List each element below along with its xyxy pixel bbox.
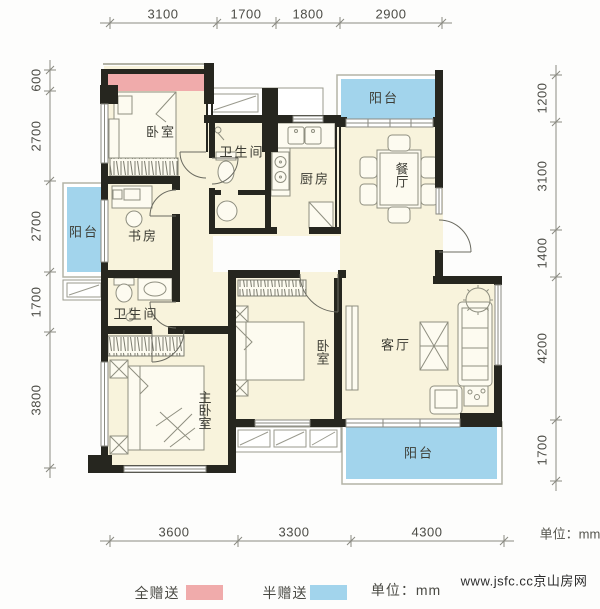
dim-bottom-2: 3300 (279, 525, 310, 540)
room-label-bath-top: 卫生间 (219, 142, 264, 161)
room-label-balcony-top: 阳台 (369, 88, 399, 107)
dim-top-1: 3100 (148, 7, 179, 22)
dim-right-3: 1400 (535, 238, 550, 269)
legend-swatch-full-gift (186, 585, 223, 600)
dim-left-5: 3800 (29, 385, 44, 416)
room-label-bedroom-mid: 卧室 (313, 339, 332, 365)
door-entry (439, 220, 471, 252)
room-label-study: 书房 (128, 226, 158, 245)
legend-label-full-gift: 全赠送 (135, 583, 180, 603)
dim-right-5: 1700 (535, 435, 550, 466)
dim-right-1: 1200 (535, 83, 550, 114)
dim-left-2: 2700 (29, 121, 44, 152)
unit-note-plan: 单位：mm (540, 524, 600, 543)
dim-line-left (44, 60, 56, 478)
room-label-living: 客厅 (381, 335, 411, 354)
dim-line-right (550, 65, 562, 491)
dim-right-4: 4200 (535, 333, 550, 364)
window-master-left (101, 362, 108, 446)
room-label-balcony-left: 阳台 (69, 222, 99, 241)
dim-top-4: 2900 (376, 7, 407, 22)
dim-top-2: 1700 (231, 7, 262, 22)
legend-label-half-gift: 半赠送 (263, 583, 308, 603)
window-bedroom-left (101, 104, 108, 163)
floorplan-page: 卧室 卫生间 厨房 餐厅 阳台 书房 阳台 卫生间 主卧室 卧室 客厅 阳台 3… (0, 0, 600, 609)
dim-left-3: 2700 (29, 211, 44, 242)
window-living-right (495, 285, 501, 365)
room-label-dining: 餐厅 (392, 162, 411, 188)
slider-balcony-bottom (346, 419, 460, 427)
window-dining-right (436, 188, 442, 214)
window-bedroom-mid-bottom (255, 420, 310, 426)
window-study-left (101, 200, 108, 262)
watermark: www.jsfc.cc京山房网 (461, 571, 588, 590)
dim-top-3: 1800 (293, 7, 324, 22)
dim-bottom-3: 4300 (412, 525, 443, 540)
room-label-bath-mid: 卫生间 (113, 304, 158, 323)
room-label-balcony-bottom: 阳台 (404, 443, 434, 462)
legend-swatch-half-gift (310, 585, 347, 600)
legend-unit-note: 单位：mm (371, 580, 441, 600)
slider-balcony-top (346, 119, 433, 127)
dim-left-4: 1700 (29, 287, 44, 318)
room-label-kitchen: 厨房 (300, 169, 330, 188)
room-label-master-bedroom: 主卧室 (195, 391, 214, 430)
floor-plan-canvas (0, 0, 600, 609)
dim-left-1: 600 (29, 68, 44, 91)
room-label-bedroom-top: 卧室 (146, 122, 176, 141)
dim-bottom-1: 3600 (159, 525, 190, 540)
dim-right-2: 3100 (535, 161, 550, 192)
window-master-bottom (124, 466, 206, 472)
window-kitchen-top (293, 116, 323, 122)
